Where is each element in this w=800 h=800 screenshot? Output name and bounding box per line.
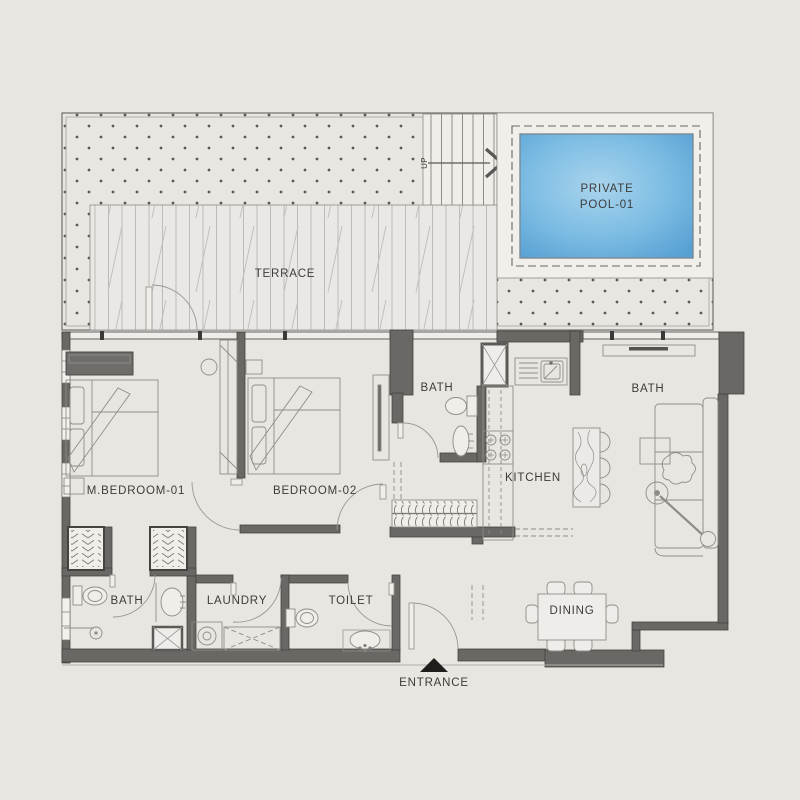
washing-machine-icon	[192, 622, 222, 650]
wall-bath02-west	[392, 393, 403, 423]
bedroom02-label: BEDROOM-02	[273, 485, 357, 497]
toilet-label: TOILET	[329, 595, 374, 607]
console-shelf	[603, 345, 695, 356]
master-closets	[68, 527, 187, 570]
wall-hall-stub	[472, 537, 483, 544]
stove-icon	[483, 431, 513, 464]
bath02-door	[398, 423, 438, 458]
sink-icon	[453, 426, 474, 456]
bed-double-icon	[66, 380, 158, 476]
wall-bottom-center	[458, 649, 546, 661]
wall-bath02-east	[477, 386, 486, 462]
wall-toilet-top	[281, 575, 348, 583]
wall-bedroom02-bottom	[240, 525, 340, 533]
plant-icon	[662, 453, 695, 485]
chair-icon	[526, 605, 538, 623]
window-icon	[62, 598, 70, 640]
stairs-up-label: UP	[420, 157, 429, 169]
living-furniture	[603, 345, 718, 556]
bath02-label: BATH	[420, 382, 453, 394]
dresser	[66, 352, 133, 375]
laundry-label: LAUNDRY	[207, 595, 267, 607]
private-pool: PRIVATE POOL-01	[497, 113, 713, 278]
tv-unit	[373, 375, 389, 460]
master-bedroom-furniture	[64, 352, 158, 494]
wall-pilaster-topright	[719, 332, 744, 394]
floor-lamp-icon	[646, 482, 716, 547]
closet-shelves-icon	[150, 527, 187, 570]
entrance-label: ENTRANCE	[399, 677, 469, 689]
kitchen-label: KITCHEN	[505, 472, 561, 484]
master-bedroom-door	[192, 479, 242, 530]
kitchen-island	[573, 428, 600, 507]
wall-dining-step-h	[632, 622, 728, 630]
stool-icon	[600, 458, 610, 478]
wall-closet-mid	[104, 527, 112, 570]
bedroom-wardrobe	[201, 340, 237, 474]
stool-icon	[600, 432, 610, 452]
bed-double-icon	[248, 378, 340, 474]
wall-dining-step-v	[632, 630, 640, 651]
duct-shaft	[153, 627, 182, 650]
kitchen-counter	[483, 386, 513, 540]
hall-wardrobe-hangers	[392, 500, 477, 527]
chair-icon	[606, 605, 618, 623]
floor-plan-drawing: UP PRIVATE POOL-01 TERRACE	[0, 0, 800, 800]
terrace-stairs: UP	[420, 114, 502, 205]
terrace-label: TERRACE	[255, 268, 316, 280]
pool-label-line1: PRIVATE	[580, 183, 633, 195]
stool-icon	[600, 484, 610, 504]
kitchen-sink-icon	[515, 358, 567, 385]
bedroom02-furniture	[246, 360, 389, 474]
wall-bath-laundry	[187, 527, 196, 650]
duct-shaft	[482, 344, 507, 386]
sink-icon	[343, 630, 390, 652]
chair-icon	[547, 582, 565, 595]
closet-shelves-icon	[68, 527, 104, 570]
toilet-icon	[286, 609, 318, 627]
chair-icon	[574, 582, 592, 595]
terrace-area: UP PRIVATE POOL-01 TERRACE	[62, 113, 713, 330]
pool-water	[520, 134, 693, 258]
dining-table	[538, 594, 606, 640]
wall-bedroom-divider	[237, 332, 245, 478]
wall-laundry-top	[196, 575, 233, 583]
ceiling-lamp-icon	[201, 359, 217, 375]
pool-label-line2: POOL-01	[580, 199, 634, 211]
wall-hall-south	[390, 527, 515, 537]
laundry-fixtures	[192, 622, 280, 650]
bar-stools	[600, 432, 610, 504]
entrance-door	[409, 603, 458, 649]
sink-icon	[156, 583, 186, 622]
walls	[62, 330, 744, 667]
laundry-counter	[224, 627, 280, 650]
wall-kitchen-living	[570, 331, 580, 395]
bath-master-label: BATH	[110, 595, 143, 607]
bath02-fixtures	[446, 396, 478, 456]
toilet-icon	[446, 396, 478, 416]
wall-column-mid	[390, 330, 413, 395]
toilet-fixtures	[286, 609, 390, 652]
dining-label: DINING	[549, 605, 594, 617]
nightstand	[246, 360, 262, 374]
living-area-label: BATH	[631, 383, 664, 395]
wall-dining-bottom	[545, 650, 664, 667]
wall-right	[718, 394, 728, 623]
master-bedroom-label: M.BEDROOM-01	[87, 485, 185, 497]
floor-plan-canvas: UP PRIVATE POOL-01 TERRACE	[0, 0, 800, 800]
toilet-icon	[73, 586, 107, 605]
